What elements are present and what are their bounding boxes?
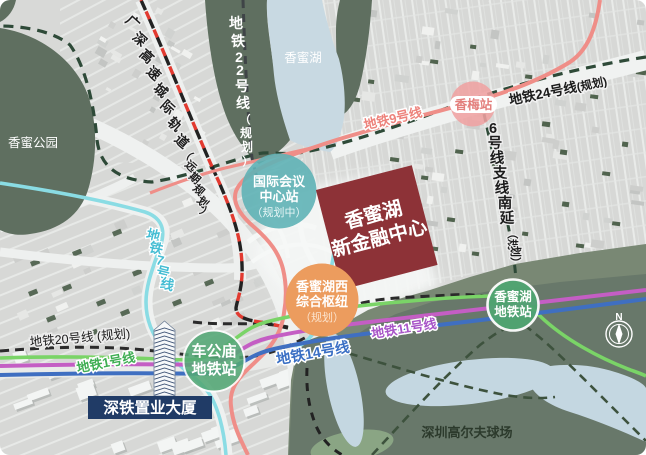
svg-text:划）: 划） xyxy=(509,246,523,268)
svg-text:铁: 铁 xyxy=(231,33,245,49)
svg-text:2: 2 xyxy=(236,62,244,78)
svg-text:地铁站: 地铁站 xyxy=(191,360,236,378)
svg-text:线: 线 xyxy=(490,149,505,167)
svg-text:深圳高尔夫球场: 深圳高尔夫球场 xyxy=(421,425,512,440)
svg-text:）: ） xyxy=(243,155,254,168)
svg-text:香蜜湖: 香蜜湖 xyxy=(493,289,532,304)
svg-text:线: 线 xyxy=(236,95,250,111)
svg-text:南: 南 xyxy=(498,194,513,212)
svg-text:（: （ xyxy=(240,113,251,126)
svg-text:支: 支 xyxy=(493,164,508,182)
svg-text:线: 线 xyxy=(495,179,510,197)
svg-text:号: 号 xyxy=(235,78,249,94)
svg-text:（规划中）: （规划中） xyxy=(252,205,307,219)
svg-text:号: 号 xyxy=(488,135,503,152)
svg-text:（规划）: （规划） xyxy=(300,310,344,324)
svg-text:香蜜公园: 香蜜公园 xyxy=(8,135,58,150)
svg-text:延: 延 xyxy=(499,209,515,227)
svg-text:划: 划 xyxy=(241,139,253,154)
svg-text:香蜜湖: 香蜜湖 xyxy=(284,50,322,65)
svg-text:6: 6 xyxy=(489,121,497,137)
svg-text:深铁置业大厦: 深铁置业大厦 xyxy=(103,398,197,417)
svg-text:中心站: 中心站 xyxy=(259,189,298,204)
svg-text:香梅站: 香梅站 xyxy=(454,97,493,112)
svg-text:地: 地 xyxy=(229,15,243,31)
svg-text:国际会议: 国际会议 xyxy=(253,174,306,189)
svg-text:香蜜湖西: 香蜜湖西 xyxy=(295,279,348,294)
svg-text:地铁站: 地铁站 xyxy=(494,304,532,319)
svg-text:车公庙: 车公庙 xyxy=(191,342,236,360)
svg-text:规: 规 xyxy=(240,125,252,140)
svg-text:综合枢纽: 综合枢纽 xyxy=(296,294,348,309)
